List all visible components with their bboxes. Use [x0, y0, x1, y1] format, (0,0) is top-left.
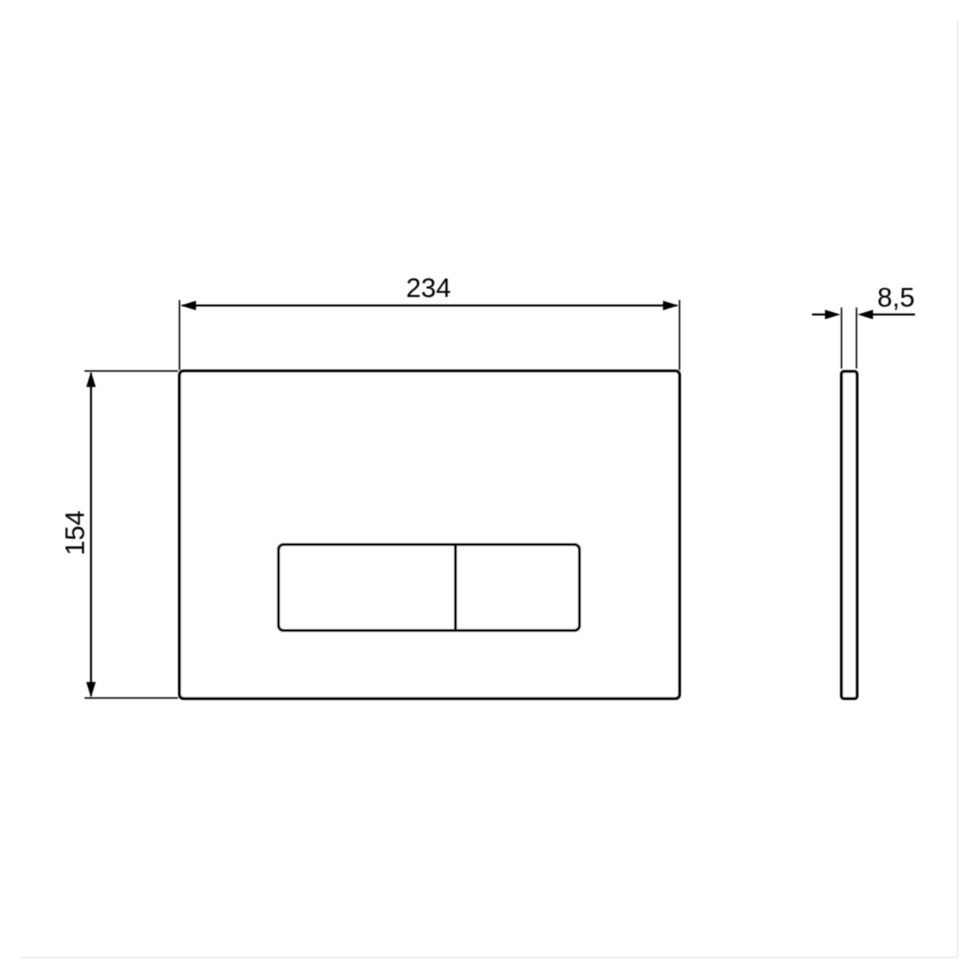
svg-text:8,5: 8,5 [877, 283, 915, 313]
svg-text:234: 234 [406, 273, 451, 303]
svg-text:154: 154 [60, 510, 90, 555]
